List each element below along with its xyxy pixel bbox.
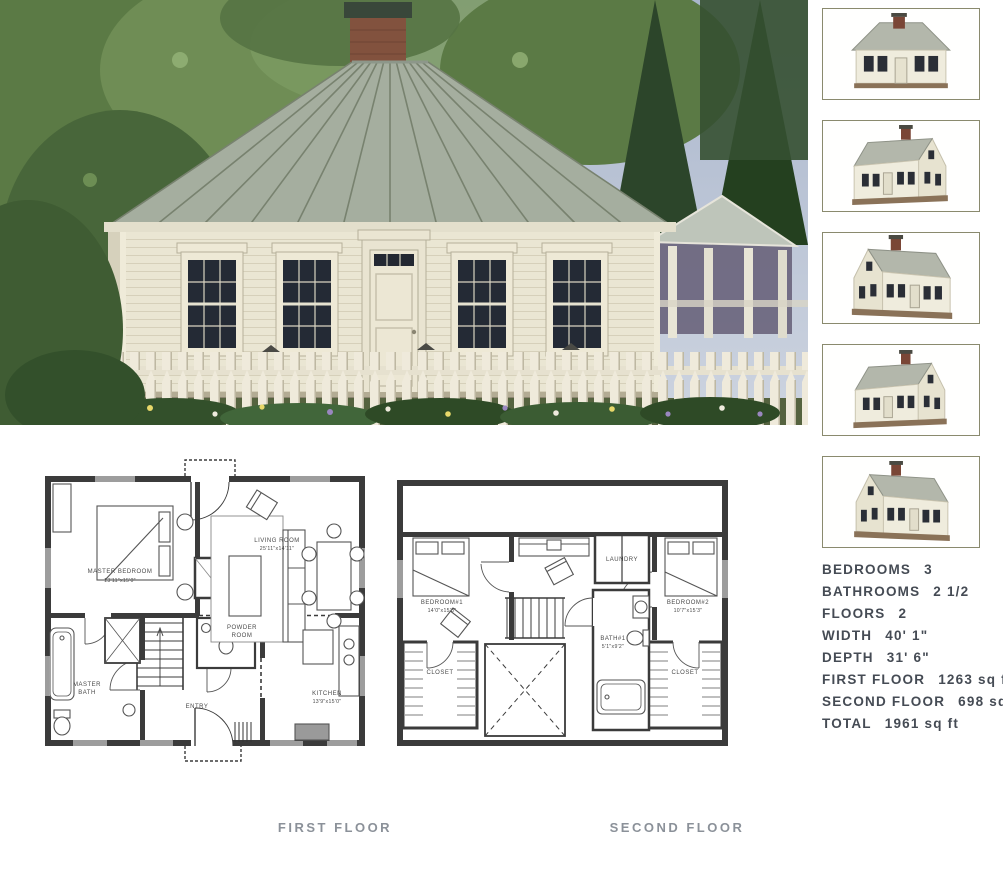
spec-depth-value: 31' 6" bbox=[887, 650, 930, 665]
dims-living-room: 25'11"x14'11" bbox=[260, 546, 294, 552]
shrubs-and-flowers bbox=[100, 397, 780, 425]
spec-bedrooms-value: 3 bbox=[924, 562, 933, 577]
label-powder-room-2: ROOM bbox=[232, 633, 253, 639]
spec-first-floor: FIRST FLOOR1263 sq ft bbox=[822, 672, 1003, 687]
dims-bedroom1: 14'0"x15'3" bbox=[428, 608, 457, 614]
label-kitchen: KITCHEN bbox=[312, 691, 342, 697]
spec-bathrooms-value: 2 1/2 bbox=[933, 584, 969, 599]
thumbnail-house-3d-rear-left-view[interactable] bbox=[822, 232, 980, 324]
spec-second-floor-label: SECOND FLOOR bbox=[822, 694, 945, 709]
spec-floors-value: 2 bbox=[898, 606, 907, 621]
chimney-cap bbox=[344, 2, 412, 18]
thumbnail-house-3d-front-left-view[interactable] bbox=[822, 120, 980, 212]
spec-bathrooms: BATHROOMS2 1/2 bbox=[822, 584, 1003, 599]
thumbnail-house-3d-rear-right-view[interactable] bbox=[822, 456, 980, 548]
thumbnail-house-3d-front-view[interactable] bbox=[822, 8, 980, 100]
label-master-bedroom: MASTER BEDROOM bbox=[88, 569, 153, 575]
window-2 bbox=[272, 243, 342, 356]
spec-total-value: 1961 sq ft bbox=[885, 716, 959, 731]
spec-depth-label: DEPTH bbox=[822, 650, 874, 665]
spec-floors: FLOORS2 bbox=[822, 606, 1003, 621]
spec-bedrooms-label: BEDROOMS bbox=[822, 562, 911, 577]
spec-width: WIDTH40' 1" bbox=[822, 628, 1003, 643]
closet-left bbox=[403, 640, 477, 728]
label-bedroom1: BEDROOM#1 bbox=[421, 600, 463, 606]
spec-second-floor: SECOND FLOOR698 sq ft bbox=[822, 694, 1003, 709]
label-master-bath-1: MASTER bbox=[73, 682, 101, 688]
label-closet-left: CLOSET bbox=[426, 670, 453, 676]
house-exterior-photo bbox=[0, 0, 808, 425]
bedroom2-furniture bbox=[665, 538, 717, 596]
spec-bedrooms: BEDROOMS3 bbox=[822, 562, 1003, 577]
window-3 bbox=[447, 243, 517, 356]
label-bedroom2: BEDROOM#2 bbox=[667, 600, 709, 606]
label-closet-right: CLOSET bbox=[671, 670, 698, 676]
label-living-room: LIVING ROOM bbox=[254, 538, 300, 544]
label-master-bath-2: BATH bbox=[78, 690, 96, 696]
spec-first-floor-value: 1263 sq ft bbox=[938, 672, 1003, 687]
thumbnail-house-3d-front-right-view[interactable] bbox=[822, 344, 980, 436]
spec-second-floor-value: 698 sq ft bbox=[958, 694, 1003, 709]
dims-bedroom2: 10'7"x15'3" bbox=[674, 608, 703, 614]
spec-width-value: 40' 1" bbox=[885, 628, 928, 643]
label-laundry: LAUNDRY bbox=[606, 557, 638, 563]
spec-total: TOTAL1961 sq ft bbox=[822, 716, 1003, 731]
label-powder-room-1: POWDER bbox=[227, 625, 257, 631]
label-bath1: BATH#1 bbox=[600, 636, 625, 642]
window-4 bbox=[542, 243, 612, 356]
house-plan-page: MASTER BEDROOM 13'11"x15'0" LIVING ROOM … bbox=[0, 0, 1003, 882]
spec-bathrooms-label: BATHROOMS bbox=[822, 584, 920, 599]
specs-panel: BEDROOMS3 BATHROOMS2 1/2 FLOORS2 WIDTH40… bbox=[822, 562, 1003, 738]
dims-master-bedroom: 13'11"x15'0" bbox=[104, 578, 136, 584]
window-1 bbox=[177, 243, 247, 356]
first-floor-caption: FIRST FLOOR bbox=[250, 820, 420, 835]
label-entry: ENTRY bbox=[186, 704, 209, 710]
spec-depth: DEPTH31' 6" bbox=[822, 650, 1003, 665]
spec-width-label: WIDTH bbox=[822, 628, 872, 643]
dims-kitchen: 13'9"x15'0" bbox=[313, 699, 342, 705]
spec-total-label: TOTAL bbox=[822, 716, 872, 731]
spec-floors-label: FLOORS bbox=[822, 606, 885, 621]
spec-first-floor-label: FIRST FLOOR bbox=[822, 672, 925, 687]
second-floor-caption: SECOND FLOOR bbox=[592, 820, 762, 835]
dims-bath1: 5'1"x9'2" bbox=[602, 644, 625, 650]
second-floor-plan: BEDROOM#1 14'0"x15'3" LAUNDRY BEDROOM#2 … bbox=[397, 480, 728, 765]
closet-right bbox=[648, 640, 722, 728]
first-floor-plan: MASTER BEDROOM 13'11"x15'0" LIVING ROOM … bbox=[45, 458, 365, 763]
